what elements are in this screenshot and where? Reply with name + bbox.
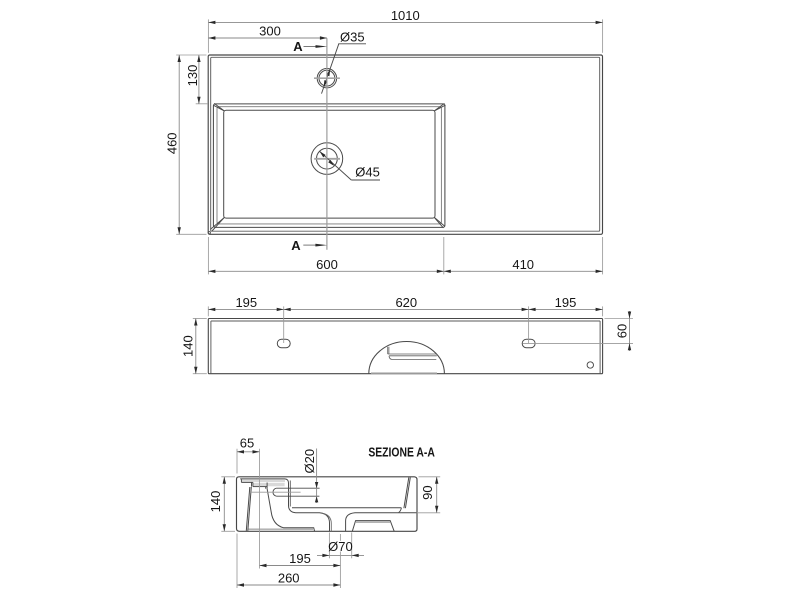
svg-text:A: A	[291, 238, 301, 253]
svg-text:140: 140	[180, 335, 195, 357]
svg-text:130: 130	[185, 65, 200, 87]
svg-text:Ø20: Ø20	[302, 449, 317, 474]
svg-text:195: 195	[235, 295, 257, 310]
svg-text:620: 620	[395, 295, 417, 310]
svg-text:600: 600	[316, 257, 338, 272]
svg-text:SEZIONE A-A: SEZIONE A-A	[368, 444, 435, 459]
svg-text:A: A	[293, 39, 303, 54]
svg-text:Ø45: Ø45	[355, 165, 380, 180]
svg-text:140: 140	[208, 491, 223, 513]
svg-text:65: 65	[240, 435, 254, 450]
svg-text:1010: 1010	[391, 8, 420, 23]
svg-text:460: 460	[165, 132, 180, 154]
svg-text:410: 410	[512, 257, 534, 272]
svg-text:Ø35: Ø35	[340, 30, 365, 45]
svg-text:195: 195	[289, 551, 311, 566]
svg-text:90: 90	[420, 485, 435, 499]
svg-text:260: 260	[278, 571, 300, 586]
svg-text:195: 195	[555, 295, 577, 310]
svg-text:300: 300	[259, 24, 281, 39]
svg-text:60: 60	[614, 324, 629, 338]
